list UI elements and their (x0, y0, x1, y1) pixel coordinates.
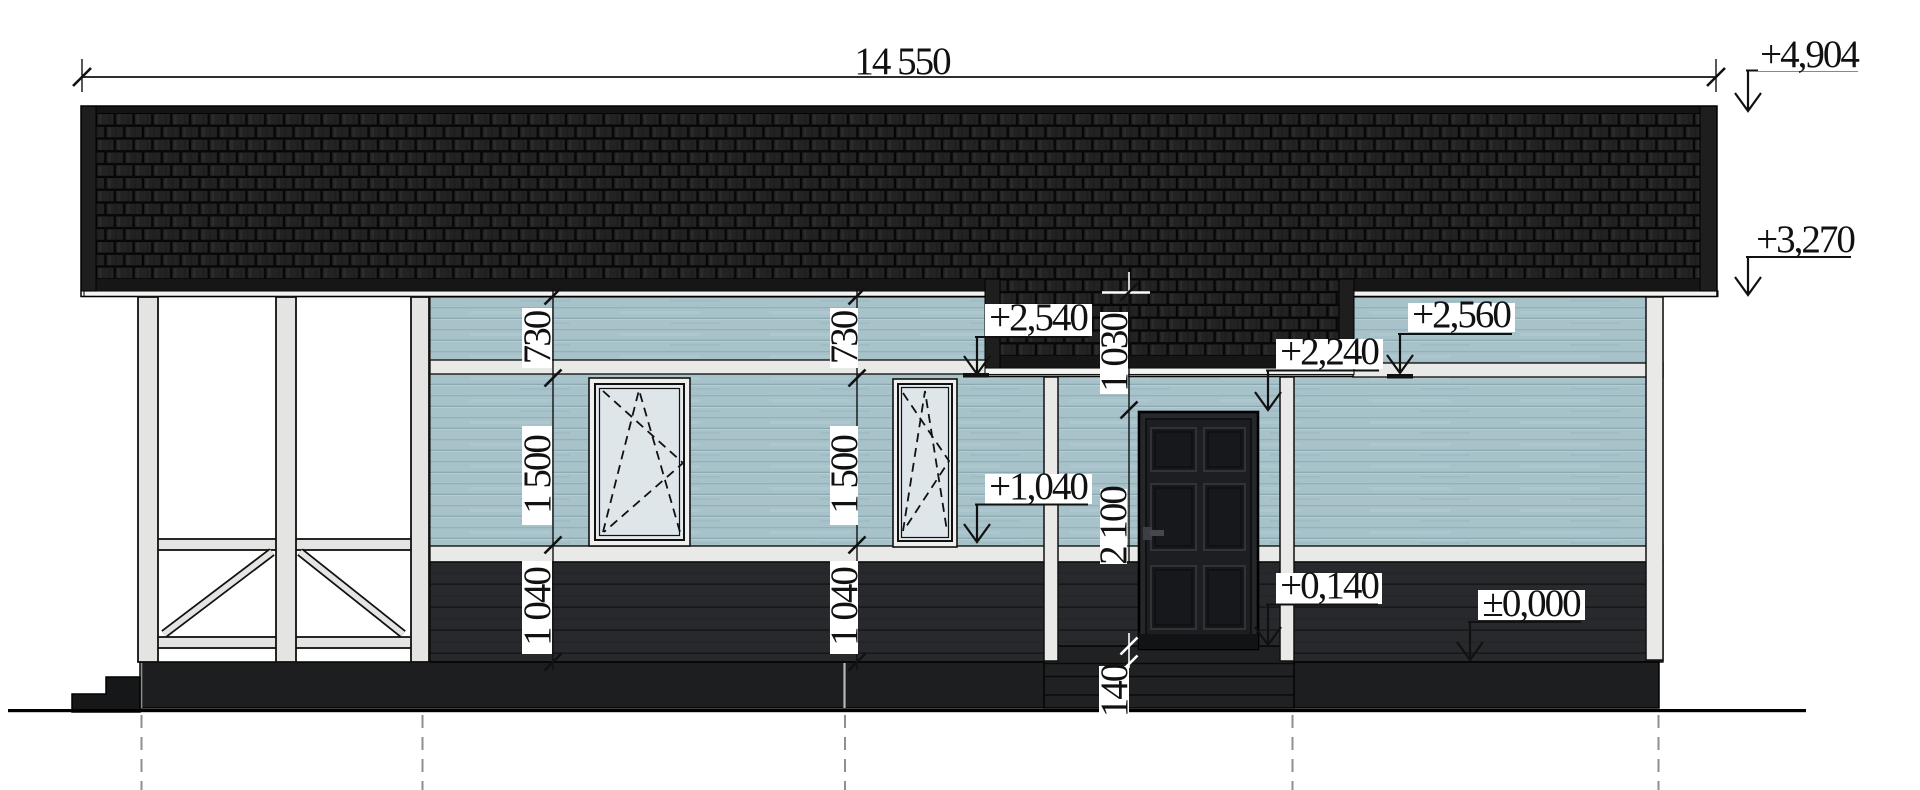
svg-text:+2,540: +2,540 (989, 296, 1088, 339)
svg-text:140: 140 (1093, 663, 1136, 717)
svg-text:+2,240: +2,240 (1280, 330, 1379, 373)
svg-text:1 030: 1 030 (1093, 313, 1136, 392)
svg-text:1 040: 1 040 (516, 567, 559, 646)
svg-text:+3,270: +3,270 (1756, 218, 1855, 261)
svg-text:1 500: 1 500 (516, 435, 559, 514)
svg-text:14 550: 14 550 (854, 40, 951, 83)
svg-text:±0,000: ±0,000 (1482, 582, 1581, 625)
svg-text:+0,140: +0,140 (1280, 564, 1379, 607)
svg-text:1 500: 1 500 (823, 435, 866, 514)
svg-text:730: 730 (823, 310, 866, 364)
svg-text:2 100: 2 100 (1092, 486, 1135, 565)
svg-text:+4,904: +4,904 (1760, 33, 1859, 76)
svg-text:+2,560: +2,560 (1412, 293, 1511, 336)
svg-text:730: 730 (516, 310, 559, 364)
svg-text:1 040: 1 040 (823, 567, 866, 646)
svg-text:+1,040: +1,040 (989, 465, 1088, 508)
